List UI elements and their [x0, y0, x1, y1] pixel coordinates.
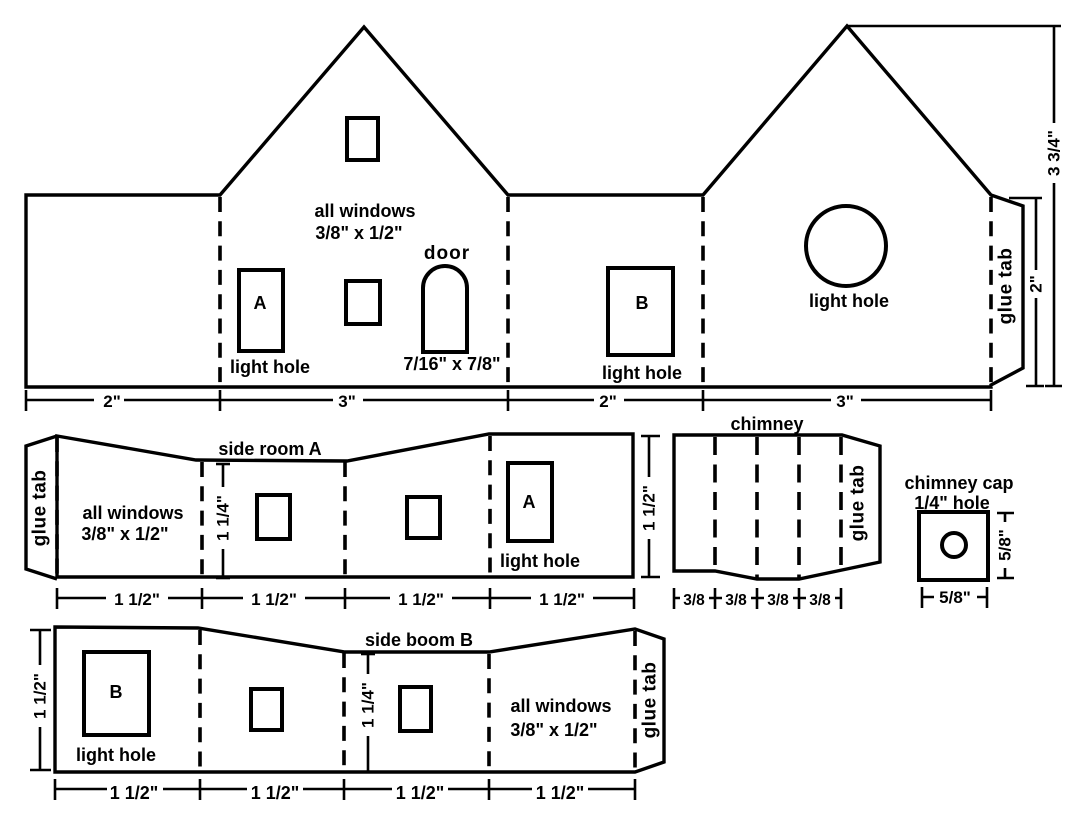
svg-text:all windows: all windows: [510, 696, 611, 716]
svg-text:2": 2": [1027, 275, 1046, 293]
svg-text:side boom B: side boom B: [365, 630, 473, 650]
svg-text:1 1/2": 1 1/2": [110, 783, 159, 803]
svg-text:door: door: [424, 243, 470, 264]
svg-text:1 1/2": 1 1/2": [251, 590, 297, 609]
svg-text:3/8: 3/8: [767, 592, 789, 609]
svg-text:1 1/4": 1 1/4": [214, 495, 233, 541]
svg-text:glue tab: glue tab: [996, 248, 1017, 325]
svg-text:1 1/2": 1 1/2": [539, 590, 585, 609]
svg-text:chimney: chimney: [730, 414, 803, 434]
svg-text:2": 2": [103, 392, 121, 411]
svg-text:3/8" x 1/2": 3/8" x 1/2": [315, 223, 402, 243]
svg-text:3/8" x 1/2": 3/8" x 1/2": [81, 524, 168, 544]
svg-text:1 1/2": 1 1/2": [536, 783, 585, 803]
svg-text:3": 3": [836, 392, 854, 411]
svg-text:all windows: all windows: [82, 503, 183, 523]
svg-text:3/8: 3/8: [725, 592, 747, 609]
svg-text:light hole: light hole: [500, 551, 580, 571]
svg-text:glue tab: glue tab: [640, 662, 661, 739]
svg-text:B: B: [636, 293, 649, 313]
svg-text:1 1/2": 1 1/2": [398, 590, 444, 609]
svg-text:A: A: [523, 492, 536, 512]
svg-text:1 1/2": 1 1/2": [396, 783, 445, 803]
svg-text:2": 2": [599, 392, 617, 411]
svg-text:1 1/2": 1 1/2": [31, 673, 50, 719]
svg-text:5/8": 5/8": [939, 588, 971, 607]
svg-text:light hole: light hole: [76, 745, 156, 765]
svg-text:3": 3": [338, 392, 356, 411]
svg-text:B: B: [110, 682, 123, 702]
svg-text:chimney cap: chimney cap: [904, 473, 1013, 493]
svg-text:light hole: light hole: [230, 357, 310, 377]
svg-text:light hole: light hole: [602, 363, 682, 383]
svg-text:light hole: light hole: [809, 291, 889, 311]
svg-text:3/8: 3/8: [683, 592, 705, 609]
svg-text:glue tab: glue tab: [848, 465, 869, 542]
svg-text:1 1/2": 1 1/2": [251, 783, 300, 803]
svg-text:3/8: 3/8: [809, 592, 831, 609]
svg-text:all windows: all windows: [314, 201, 415, 221]
svg-text:1 1/2": 1 1/2": [640, 485, 659, 531]
svg-text:3 3/4": 3 3/4": [1045, 130, 1064, 176]
svg-text:A: A: [254, 293, 267, 313]
svg-text:5/8": 5/8": [996, 529, 1015, 561]
svg-text:7/16" x 7/8": 7/16" x 7/8": [403, 354, 500, 374]
svg-text:1 1/4": 1 1/4": [359, 682, 378, 728]
svg-text:3/8" x 1/2": 3/8" x 1/2": [510, 720, 597, 740]
svg-text:side room A: side room A: [218, 439, 321, 459]
svg-text:1 1/2": 1 1/2": [114, 590, 160, 609]
svg-text:glue tab: glue tab: [30, 470, 51, 547]
